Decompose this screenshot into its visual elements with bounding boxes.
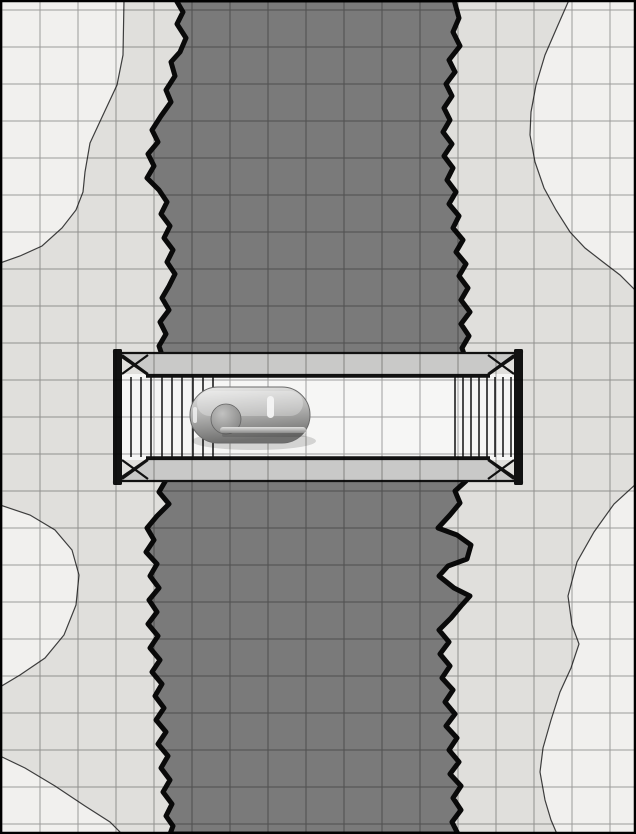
battle-map — [0, 0, 636, 834]
bridge-south-railing — [116, 459, 520, 481]
cart-plank-detail — [267, 396, 274, 418]
cart-rim-highlight — [193, 407, 197, 423]
cart-handle-shadow — [222, 433, 306, 437]
cart-handle — [220, 427, 306, 433]
bridge-north-railing — [116, 353, 520, 375]
battle-map-canvas — [0, 0, 636, 834]
cart-token[interactable] — [190, 387, 316, 450]
